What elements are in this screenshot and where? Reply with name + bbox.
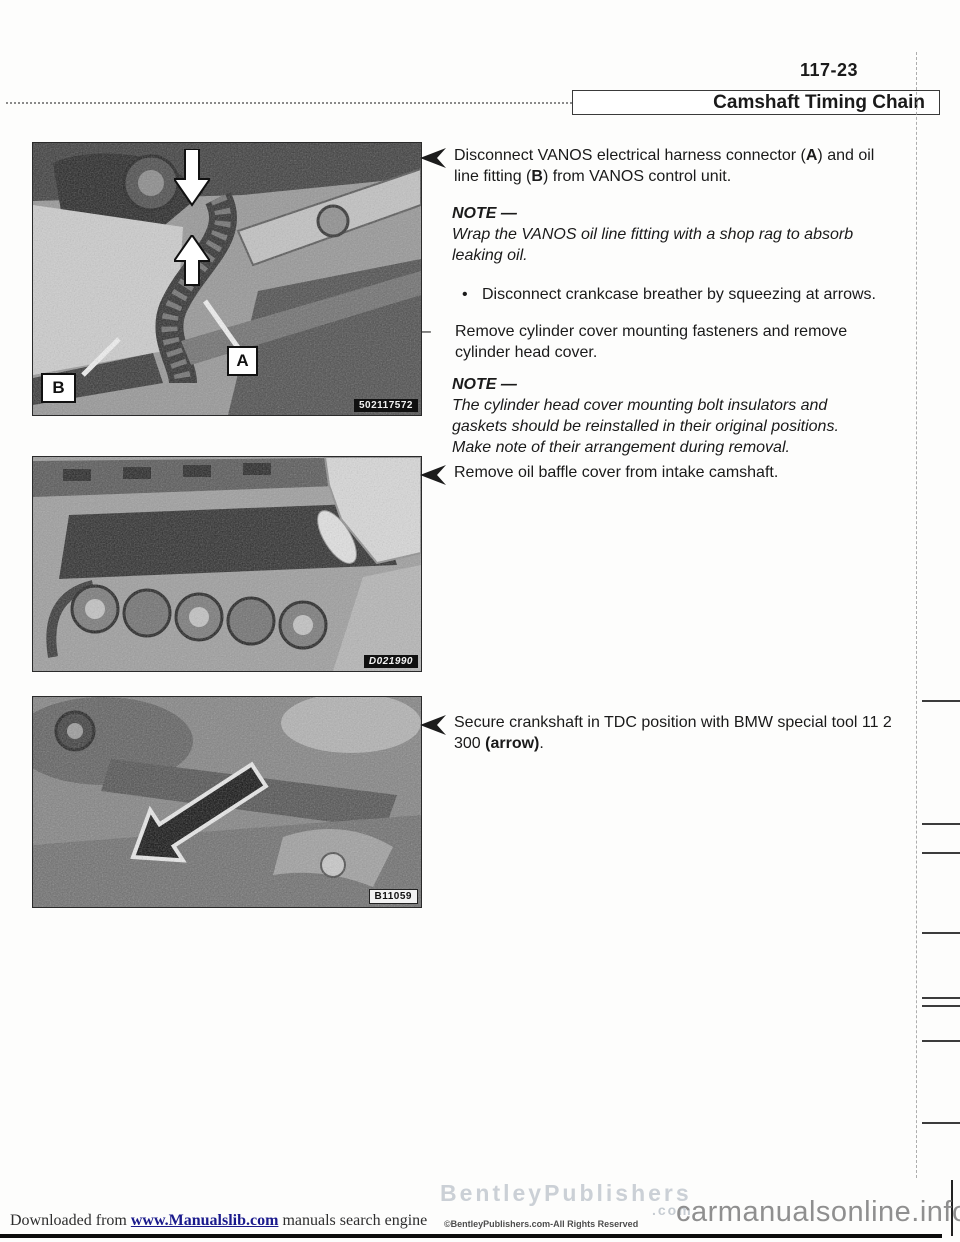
step-arrow-icon [420,145,454,187]
note-body: Wrap the VANOS oil line fitting with a s… [452,224,882,266]
note-label: NOTE — [452,374,882,395]
step1-seg3: ) from VANOS control unit. [543,168,731,185]
dash-icon: – [422,321,455,363]
step-text: Disconnect VANOS electrical harness conn… [454,145,898,187]
photo1-id-tag: 502117572 [354,399,418,412]
photo3-id-tag: B11059 [369,889,418,904]
step3-seg2: . [539,735,543,752]
copyright-text: ©BentleyPublishers.com-All Rights Reserv… [444,1219,638,1229]
up-arrow-icon [174,235,210,287]
callout-b: B [41,373,76,403]
note-insulators: NOTE — The cylinder head cover mounting … [452,374,882,458]
carmanualsonline-watermark: carmanualsonline.info [676,1196,960,1229]
dash-remove-cover: – Remove cylinder cover mounting fastene… [422,321,882,363]
page-edge-line [916,52,917,1178]
downloaded-pre: Downloaded from [10,1212,131,1229]
margin-mark [922,700,960,702]
down-arrow-icon [174,149,210,207]
photo-tdc-tool: B11059 [32,696,422,908]
photo2-id-tag: D021990 [364,655,418,668]
margin-mark [922,932,960,934]
photo-oil-baffle: D021990 [32,456,422,672]
downloaded-line: Downloaded from www.Manualslib.com manua… [10,1212,427,1230]
downloaded-post: manuals search engine [278,1212,427,1229]
step-disconnect-vanos: Disconnect VANOS electrical harness conn… [420,145,898,187]
step-text: Remove oil baffle cover from intake cams… [454,462,778,491]
note-label: NOTE — [452,203,882,224]
page-number: 117-23 [800,60,858,81]
step1-bold-b: B [531,168,543,185]
margin-mark [922,1122,960,1124]
header-rule [6,102,572,104]
callout-a: A [227,346,258,376]
photo3-art [33,697,421,907]
dash-text: Remove cylinder cover mounting fasteners… [455,321,882,363]
margin-mark [922,852,960,854]
manual-page: { "page": { "number": "117-23", "title":… [0,0,960,1242]
step-text: Secure crankshaft in TDC position with B… [454,712,898,754]
note-shop-rag: NOTE — Wrap the VANOS oil line fitting w… [452,203,882,266]
bullet-crankcase-breather: • Disconnect crankcase breather by squee… [462,284,892,305]
bullet-text: Disconnect crankcase breather by squeezi… [482,284,876,305]
margin-mark [922,823,960,825]
margin-mark [922,1040,960,1042]
margin-mark [922,1005,960,1007]
manualslib-link[interactable]: www.Manualslib.com [131,1212,279,1229]
step-remove-baffle: Remove oil baffle cover from intake cams… [420,462,898,491]
page-title: Camshaft Timing Chain [572,90,940,115]
bullet-icon: • [462,284,482,305]
step-arrow-icon [420,462,454,491]
step-arrow-icon [420,712,454,754]
photo-vanos-unit: A B 502117572 [32,142,422,416]
margin-mark [922,997,960,999]
step-secure-crankshaft: Secure crankshaft in TDC position with B… [420,712,898,754]
step1-seg1: Disconnect VANOS electrical harness conn… [454,147,806,164]
step3-bold-arrow: (arrow) [485,735,539,752]
step1-bold-a: A [806,147,818,164]
note-body: The cylinder head cover mounting bolt in… [452,395,882,458]
photo2-art [33,457,421,671]
bottom-rule [0,1234,942,1238]
